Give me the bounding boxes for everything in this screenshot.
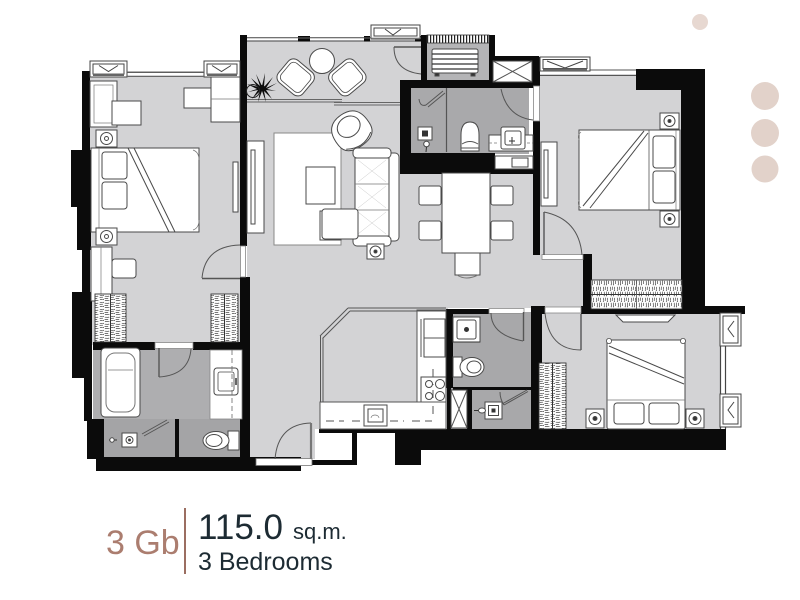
svg-text:3 Bedrooms: 3 Bedrooms [198, 548, 333, 576]
svg-text:sq.m.: sq.m. [293, 519, 347, 544]
svg-text:3 Gb: 3 Gb [106, 524, 180, 562]
svg-text:115.0: 115.0 [198, 508, 283, 547]
